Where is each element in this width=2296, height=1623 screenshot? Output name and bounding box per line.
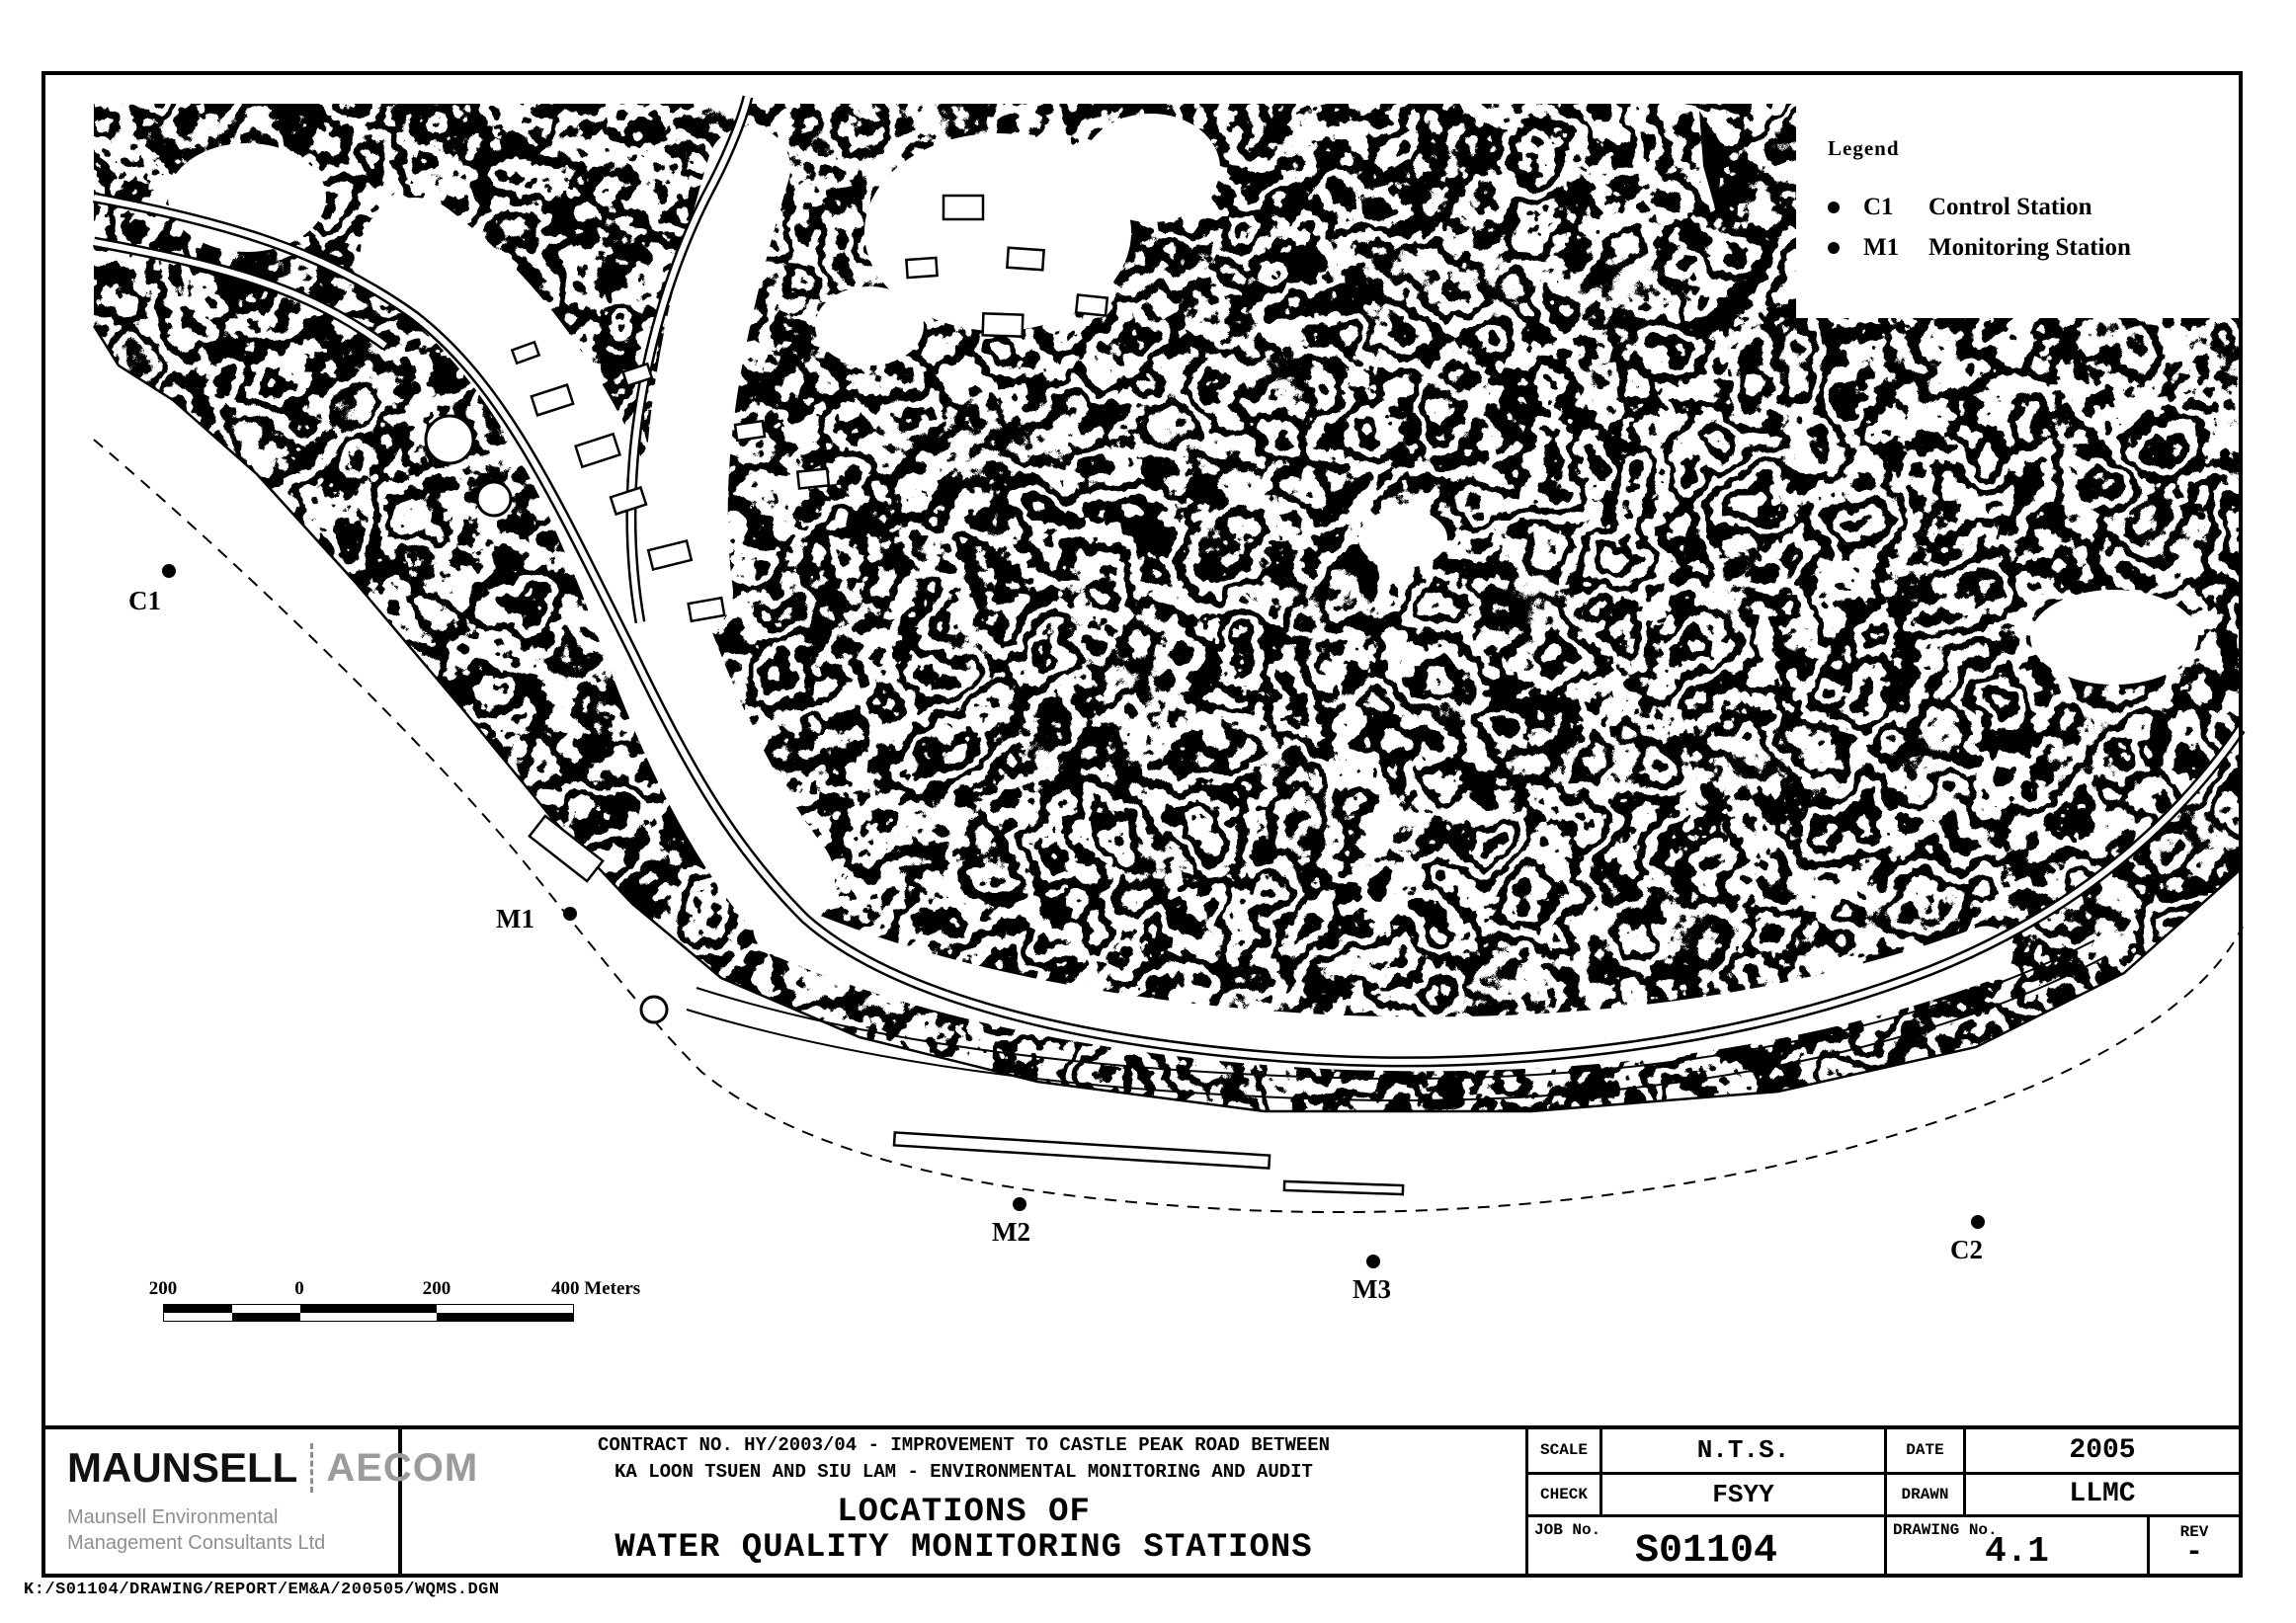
date-value: 2005 bbox=[2069, 1435, 2135, 1466]
drawn-label: DRAWN bbox=[1901, 1486, 1948, 1503]
legend-items: C1 Control Station M1 Monitoring Station bbox=[1828, 187, 2239, 268]
file-path-note: K:/S01104/DRAWING/REPORT/EM&A/200505/WQM… bbox=[24, 1581, 500, 1599]
scale-bar-row bbox=[164, 1313, 573, 1321]
station-label: C1 bbox=[128, 586, 161, 616]
title-block-grid: SCALE N.T.S. DATE 2005 CHECK FSYY DRAWN … bbox=[1525, 1429, 2239, 1574]
job-number-cell: JOB No. S01104 bbox=[1528, 1517, 1887, 1574]
revision-label: REV bbox=[2180, 1523, 2209, 1541]
legend: Legend C1 Control Station M1 Monitoring … bbox=[1796, 85, 2239, 318]
drawn-value: LLMC bbox=[2069, 1479, 2135, 1509]
company-logo: MAUNSELL AECOM bbox=[67, 1443, 398, 1493]
scale-bar: 200 0 200 400 Meters bbox=[146, 1278, 680, 1341]
station-label: M2 bbox=[992, 1217, 1030, 1248]
scale-segment bbox=[232, 1305, 300, 1313]
station-dot-icon bbox=[1828, 242, 1840, 254]
company-subtitle-line2: Management Consultants Ltd bbox=[67, 1530, 398, 1556]
scale-tick-label: 200 bbox=[423, 1278, 451, 1300]
job-number-value: S01104 bbox=[1635, 1529, 1777, 1574]
scale-value-cell: N.T.S. bbox=[1602, 1429, 1887, 1472]
legend-code: M1 bbox=[1863, 234, 1928, 262]
scale-segment bbox=[437, 1305, 573, 1313]
drawing-number-cell: DRAWING No. 4.1 bbox=[1887, 1517, 2150, 1574]
legend-item-control: C1 Control Station bbox=[1828, 187, 2239, 227]
station-dot bbox=[563, 907, 577, 921]
drawn-label-cell: DRAWN bbox=[1887, 1475, 1966, 1514]
station-label: M1 bbox=[496, 904, 534, 934]
station-dot-icon bbox=[1828, 202, 1840, 213]
station-dot bbox=[162, 564, 176, 578]
check-label: CHECK bbox=[1540, 1486, 1588, 1503]
scale-bar-row bbox=[164, 1305, 573, 1313]
company-subtitle-line1: Maunsell Environmental bbox=[67, 1504, 398, 1530]
scale-segment bbox=[232, 1313, 300, 1321]
title-block-row-scale-date: SCALE N.T.S. DATE 2005 bbox=[1528, 1429, 2239, 1475]
contract-line-1: CONTRACT NO. HY/2003/04 - IMPROVEMENT TO… bbox=[402, 1434, 1525, 1456]
scale-tick-label: 400 Meters bbox=[551, 1278, 640, 1300]
logo-maunsell: MAUNSELL bbox=[67, 1444, 297, 1492]
scale-segment bbox=[300, 1313, 437, 1321]
drawing-title-line-1: LOCATIONS OF bbox=[402, 1495, 1525, 1530]
station-label: M3 bbox=[1353, 1274, 1391, 1305]
station-dot bbox=[1013, 1197, 1026, 1211]
company-subtitle: Maunsell Environmental Management Consul… bbox=[67, 1504, 398, 1556]
contract-line-2: KA LOON TSUEN AND SIU LAM - ENVIRONMENTA… bbox=[402, 1461, 1525, 1483]
drawing-title-line-2: WATER QUALITY MONITORING STATIONS bbox=[402, 1530, 1525, 1566]
scale-value: N.T.S. bbox=[1697, 1435, 1790, 1465]
scale-bar-graphic bbox=[163, 1304, 574, 1322]
job-number-label: JOB No. bbox=[1534, 1521, 1600, 1539]
date-label: DATE bbox=[1906, 1441, 1943, 1459]
legend-label: Control Station bbox=[1928, 194, 2092, 221]
title-block-row-check-drawn: CHECK FSYY DRAWN LLMC bbox=[1528, 1475, 2239, 1517]
legend-label: Monitoring Station bbox=[1928, 234, 2131, 262]
drawing-number-label: DRAWING No. bbox=[1893, 1521, 1998, 1539]
scale-segment bbox=[164, 1313, 232, 1321]
legend-item-monitoring: M1 Monitoring Station bbox=[1828, 227, 2239, 268]
station-dot bbox=[1366, 1255, 1380, 1268]
date-label-cell: DATE bbox=[1887, 1429, 1966, 1472]
date-value-cell: 2005 bbox=[1966, 1429, 2239, 1472]
scale-tick-label: 200 bbox=[149, 1278, 178, 1300]
station-dot bbox=[1971, 1215, 1985, 1229]
scale-label: SCALE bbox=[1540, 1441, 1588, 1459]
scale-label-cell: SCALE bbox=[1528, 1429, 1602, 1472]
scale-segment bbox=[164, 1305, 232, 1313]
title-block: MAUNSELL AECOM Maunsell Environmental Ma… bbox=[41, 1425, 2243, 1578]
title-block-row-job-drawing: JOB No. S01104 DRAWING No. 4.1 REV - bbox=[1528, 1517, 2239, 1574]
check-value: FSYY bbox=[1712, 1480, 1773, 1509]
scale-segment bbox=[437, 1313, 573, 1321]
check-label-cell: CHECK bbox=[1528, 1475, 1602, 1514]
company-logo-cell: MAUNSELL AECOM Maunsell Environmental Ma… bbox=[45, 1429, 402, 1574]
drawing-title-cell: CONTRACT NO. HY/2003/04 - IMPROVEMENT TO… bbox=[402, 1429, 1525, 1574]
legend-code: C1 bbox=[1863, 194, 1928, 221]
scale-tick-label: 0 bbox=[294, 1278, 304, 1300]
check-value-cell: FSYY bbox=[1602, 1475, 1887, 1514]
scale-segment bbox=[300, 1305, 437, 1313]
legend-title: Legend bbox=[1828, 136, 2239, 161]
revision-cell: REV - bbox=[2150, 1517, 2239, 1574]
logo-divider bbox=[310, 1443, 313, 1493]
station-label: C2 bbox=[1950, 1235, 1983, 1265]
drawing-sheet: Legend C1 Control Station M1 Monitoring … bbox=[0, 0, 2296, 1623]
drawn-value-cell: LLMC bbox=[1966, 1475, 2239, 1514]
